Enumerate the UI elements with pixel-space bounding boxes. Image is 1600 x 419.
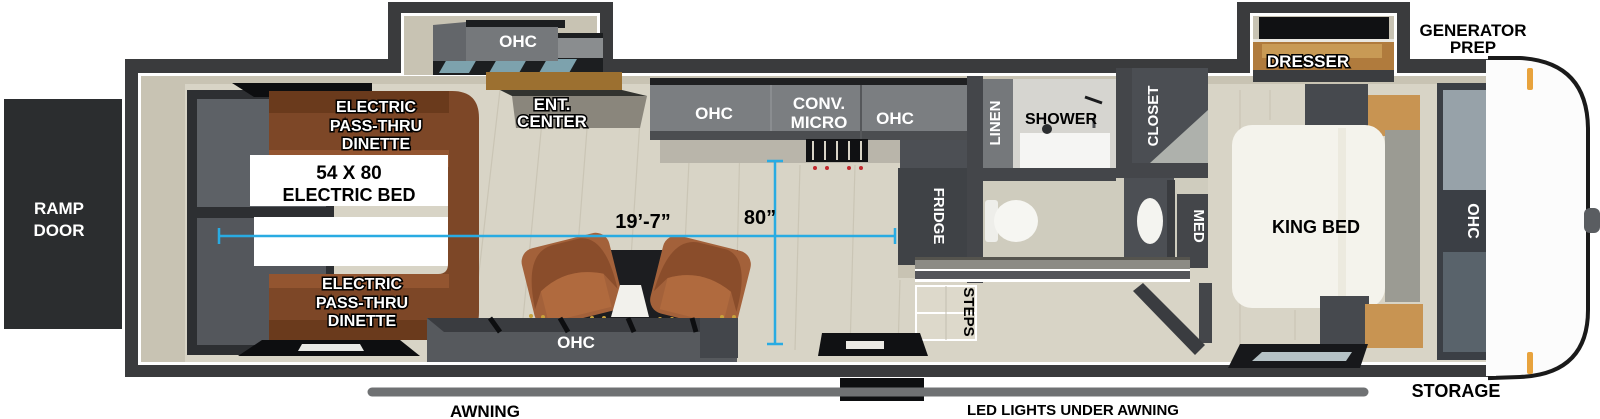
svg-text:CENTER: CENTER — [517, 112, 587, 131]
svg-text:STEPS: STEPS — [960, 287, 977, 336]
svg-text:MICRO: MICRO — [791, 113, 848, 132]
svg-text:OHC: OHC — [1464, 203, 1481, 239]
svg-text:MED: MED — [1190, 209, 1207, 243]
svg-text:DOOR: DOOR — [34, 221, 85, 240]
svg-text:PASS-THRU: PASS-THRU — [330, 118, 422, 135]
svg-text:ELECTRIC BED: ELECTRIC BED — [282, 185, 415, 205]
svg-text:19’-7”: 19’-7” — [615, 211, 671, 233]
svg-text:DINETTE: DINETTE — [342, 136, 411, 153]
svg-text:54 X 80: 54 X 80 — [316, 163, 382, 184]
svg-text:FRIDGE: FRIDGE — [930, 188, 947, 245]
svg-text:OHC: OHC — [557, 333, 595, 352]
svg-text:OHC: OHC — [499, 32, 537, 51]
svg-text:80”: 80” — [744, 207, 776, 229]
svg-text:DRESSER: DRESSER — [1267, 52, 1349, 71]
svg-text:DINETTE: DINETTE — [328, 313, 397, 330]
svg-text:LED LIGHTS UNDER AWNING: LED LIGHTS UNDER AWNING — [967, 402, 1179, 419]
svg-text:KING BED: KING BED — [1272, 217, 1360, 237]
svg-text:RAMP: RAMP — [34, 199, 84, 218]
svg-text:ELECTRIC: ELECTRIC — [322, 276, 402, 293]
svg-text:AWNING: AWNING — [450, 402, 520, 419]
svg-text:ELECTRIC: ELECTRIC — [336, 99, 416, 116]
svg-text:CLOSET: CLOSET — [1145, 86, 1162, 147]
svg-text:STORAGE: STORAGE — [1412, 381, 1501, 401]
svg-text:LINEN: LINEN — [987, 101, 1004, 146]
svg-text:PASS-THRU: PASS-THRU — [316, 295, 408, 312]
svg-text:PREP: PREP — [1450, 38, 1496, 57]
svg-text:OHC: OHC — [876, 109, 914, 128]
svg-text:OHC: OHC — [695, 104, 733, 123]
svg-text:CONV.: CONV. — [793, 94, 845, 113]
svg-text:SHOWER: SHOWER — [1025, 111, 1097, 128]
